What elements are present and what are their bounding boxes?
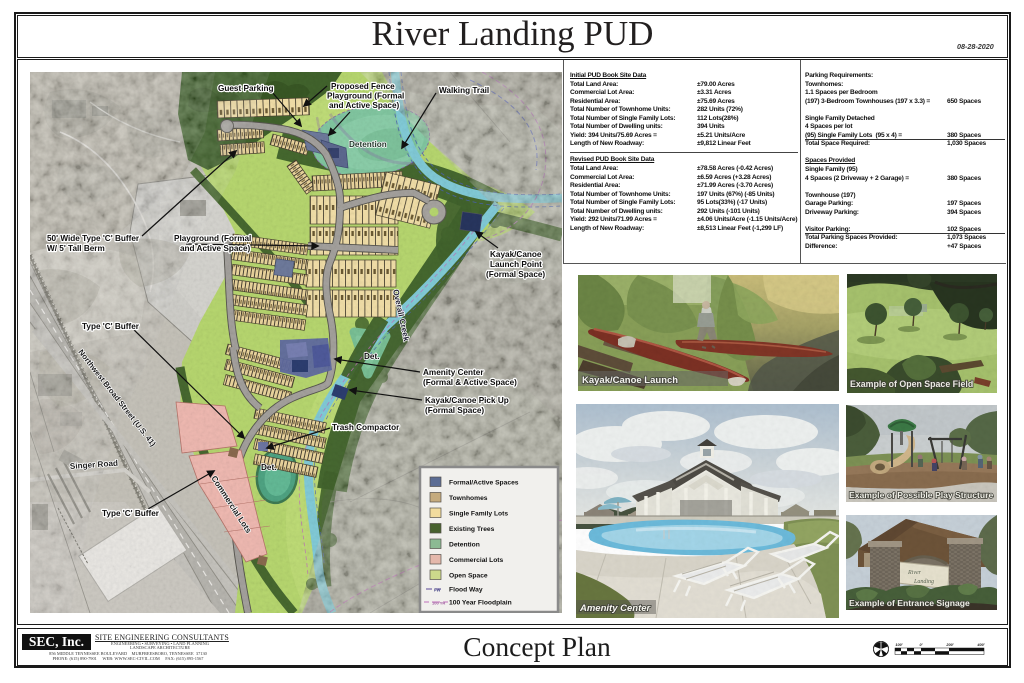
svg-text:Single Family Lots: Single Family Lots bbox=[449, 511, 508, 518]
svg-text:50' Wide Type 'C' Buffer: 50' Wide Type 'C' Buffer bbox=[47, 234, 140, 243]
svg-text:Townhomes: Townhomes bbox=[449, 495, 488, 502]
svg-text:Playground (Formal: Playground (Formal bbox=[174, 234, 251, 243]
svg-text:Trash Compactor: Trash Compactor bbox=[332, 423, 400, 432]
svg-text:Playground (Formal: Playground (Formal bbox=[327, 92, 404, 101]
svg-text:and Active Space): and Active Space) bbox=[329, 101, 399, 110]
svg-text:100 YR: 100 YR bbox=[432, 601, 445, 606]
svg-text:400': 400' bbox=[976, 643, 984, 647]
svg-text:Guest Parking: Guest Parking bbox=[218, 84, 274, 93]
svg-text:and Active Space): and Active Space) bbox=[180, 244, 250, 253]
svg-text:Formal/Active Spaces: Formal/Active Spaces bbox=[449, 480, 519, 487]
svg-text:Proposed Fence: Proposed Fence bbox=[331, 82, 395, 91]
svg-text:Existing Trees: Existing Trees bbox=[449, 526, 495, 533]
svg-text:200': 200' bbox=[945, 643, 953, 647]
svg-text:Kayak/Canoe: Kayak/Canoe bbox=[490, 250, 542, 259]
svg-text:100 Year Floodplain: 100 Year Floodplain bbox=[449, 600, 512, 607]
svg-text:Amenity Center: Amenity Center bbox=[423, 368, 484, 377]
svg-text:Commercial Lots: Commercial Lots bbox=[449, 557, 504, 564]
svg-text:Type 'C' Buffer: Type 'C' Buffer bbox=[82, 322, 140, 331]
svg-text:Walking Trail: Walking Trail bbox=[439, 86, 489, 95]
svg-text:Det.: Det. bbox=[261, 463, 276, 472]
svg-text:0': 0' bbox=[919, 643, 922, 647]
svg-text:(Formal Space): (Formal Space) bbox=[486, 270, 545, 279]
svg-text:Launch Point: Launch Point bbox=[490, 260, 542, 269]
svg-text:100': 100' bbox=[895, 643, 902, 647]
svg-text:Kayak/Canoe Pick Up: Kayak/Canoe Pick Up bbox=[425, 396, 509, 405]
svg-text:Open Space: Open Space bbox=[449, 573, 488, 580]
svg-text:(Formal Space): (Formal Space) bbox=[425, 406, 484, 415]
svg-text:W/ 5' Tall Berm: W/ 5' Tall Berm bbox=[47, 244, 105, 253]
svg-text:Detention: Detention bbox=[449, 542, 480, 549]
svg-text:Flood Way: Flood Way bbox=[449, 587, 483, 594]
svg-text:Det.: Det. bbox=[364, 352, 379, 361]
svg-text:Detention: Detention bbox=[349, 140, 387, 149]
svg-text:Type 'C' Buffer: Type 'C' Buffer bbox=[102, 509, 160, 518]
svg-text:FW: FW bbox=[434, 588, 441, 593]
svg-text:(Formal & Active Space): (Formal & Active Space) bbox=[423, 378, 517, 387]
